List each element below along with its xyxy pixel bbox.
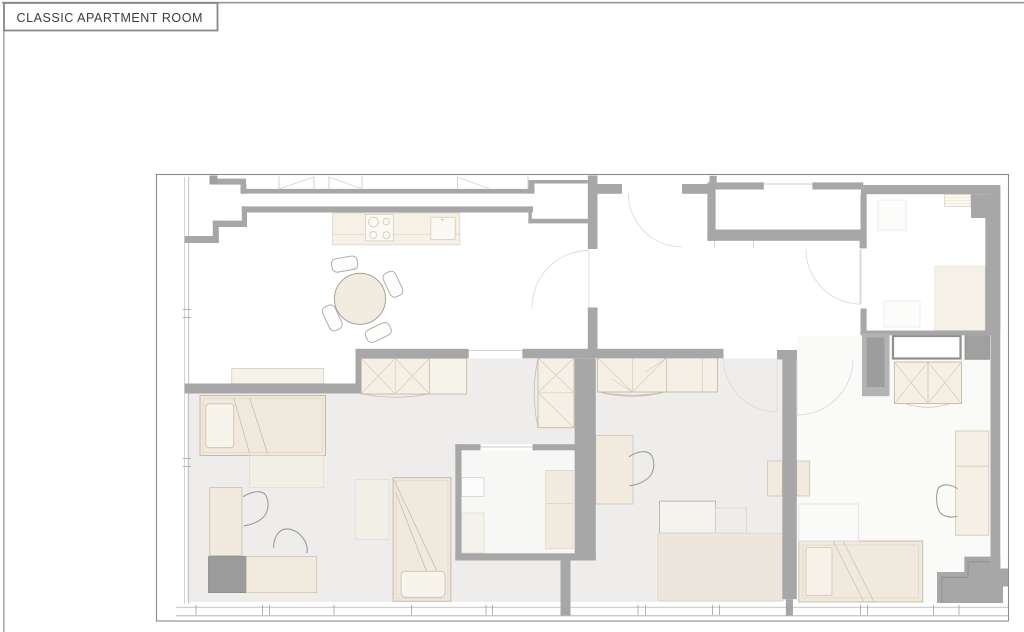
svg-text:CLASSIC APARTMENT ROOM: CLASSIC APARTMENT ROOM (17, 11, 203, 25)
